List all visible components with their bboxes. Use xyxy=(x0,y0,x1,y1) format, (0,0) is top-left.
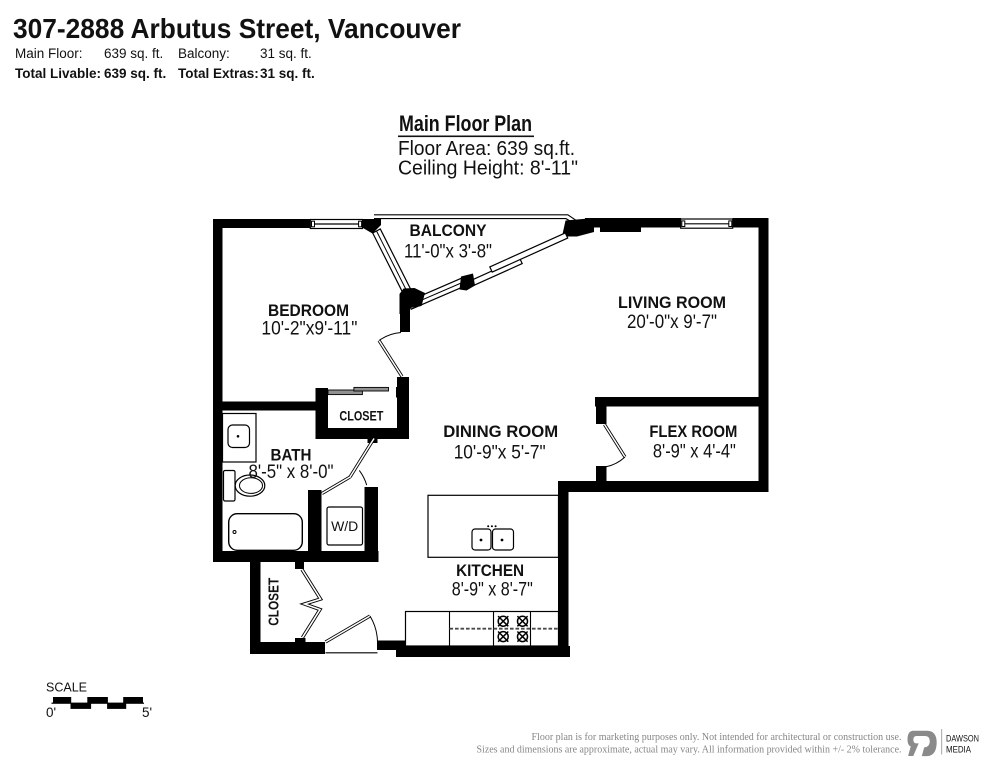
svg-text:8'-9" x 8'-7": 8'-9" x 8'-7" xyxy=(452,580,533,601)
svg-text:10'-2"x9'-11": 10'-2"x9'-11" xyxy=(261,319,357,340)
svg-text:MEDIA: MEDIA xyxy=(946,745,971,755)
svg-text:Main Floor Plan: Main Floor Plan xyxy=(399,111,532,136)
svg-text:Main Floor:: Main Floor: xyxy=(15,46,83,61)
svg-text:DINING ROOM: DINING ROOM xyxy=(443,422,558,441)
svg-text:Total Extras:: Total Extras: xyxy=(178,66,259,81)
svg-text:LIVING ROOM: LIVING ROOM xyxy=(618,293,726,312)
svg-text:Balcony:: Balcony: xyxy=(178,46,230,61)
svg-text:10'-9"x 5'-7": 10'-9"x 5'-7" xyxy=(454,443,546,464)
svg-text:Sizes and dimensions are appro: Sizes and dimensions are approximate, ac… xyxy=(477,745,902,756)
svg-text:31 sq. ft.: 31 sq. ft. xyxy=(260,46,312,61)
svg-text:CLOSET: CLOSET xyxy=(339,408,383,424)
svg-text:307-2888 Arbutus Street, Vanco: 307-2888 Arbutus Street, Vancouver xyxy=(13,13,461,44)
svg-text:W/D: W/D xyxy=(331,518,358,534)
svg-text:CLOSET: CLOSET xyxy=(266,578,283,626)
svg-text:8'-9" x 4'-4": 8'-9" x 4'-4" xyxy=(653,442,736,463)
svg-text:Floor plan is for marketing pu: Floor plan is for marketing purposes onl… xyxy=(532,732,902,743)
svg-text:8'-5" x 8'-0": 8'-5" x 8'-0" xyxy=(249,462,334,483)
svg-text:Ceiling Height: 8'-11": Ceiling Height: 8'-11" xyxy=(398,158,578,180)
svg-text:0': 0' xyxy=(46,705,56,720)
svg-text:Total Livable:: Total Livable: xyxy=(15,66,101,81)
svg-text:SCALE: SCALE xyxy=(46,681,87,695)
svg-text:639 sq. ft.: 639 sq. ft. xyxy=(104,46,163,61)
svg-text:31 sq. ft.: 31 sq. ft. xyxy=(260,66,315,81)
svg-text:FLEX ROOM: FLEX ROOM xyxy=(649,422,737,441)
svg-text:5': 5' xyxy=(142,705,152,720)
svg-text:639 sq. ft.: 639 sq. ft. xyxy=(104,66,166,81)
svg-text:KITCHEN: KITCHEN xyxy=(456,561,524,580)
svg-text:BALCONY: BALCONY xyxy=(410,221,488,240)
svg-text:BEDROOM: BEDROOM xyxy=(268,301,349,320)
svg-text:11'-0"x 3'-8": 11'-0"x 3'-8" xyxy=(404,242,492,263)
svg-text:DAWSON: DAWSON xyxy=(946,734,979,744)
svg-text:20'-0"x 9'-7": 20'-0"x 9'-7" xyxy=(627,312,717,333)
